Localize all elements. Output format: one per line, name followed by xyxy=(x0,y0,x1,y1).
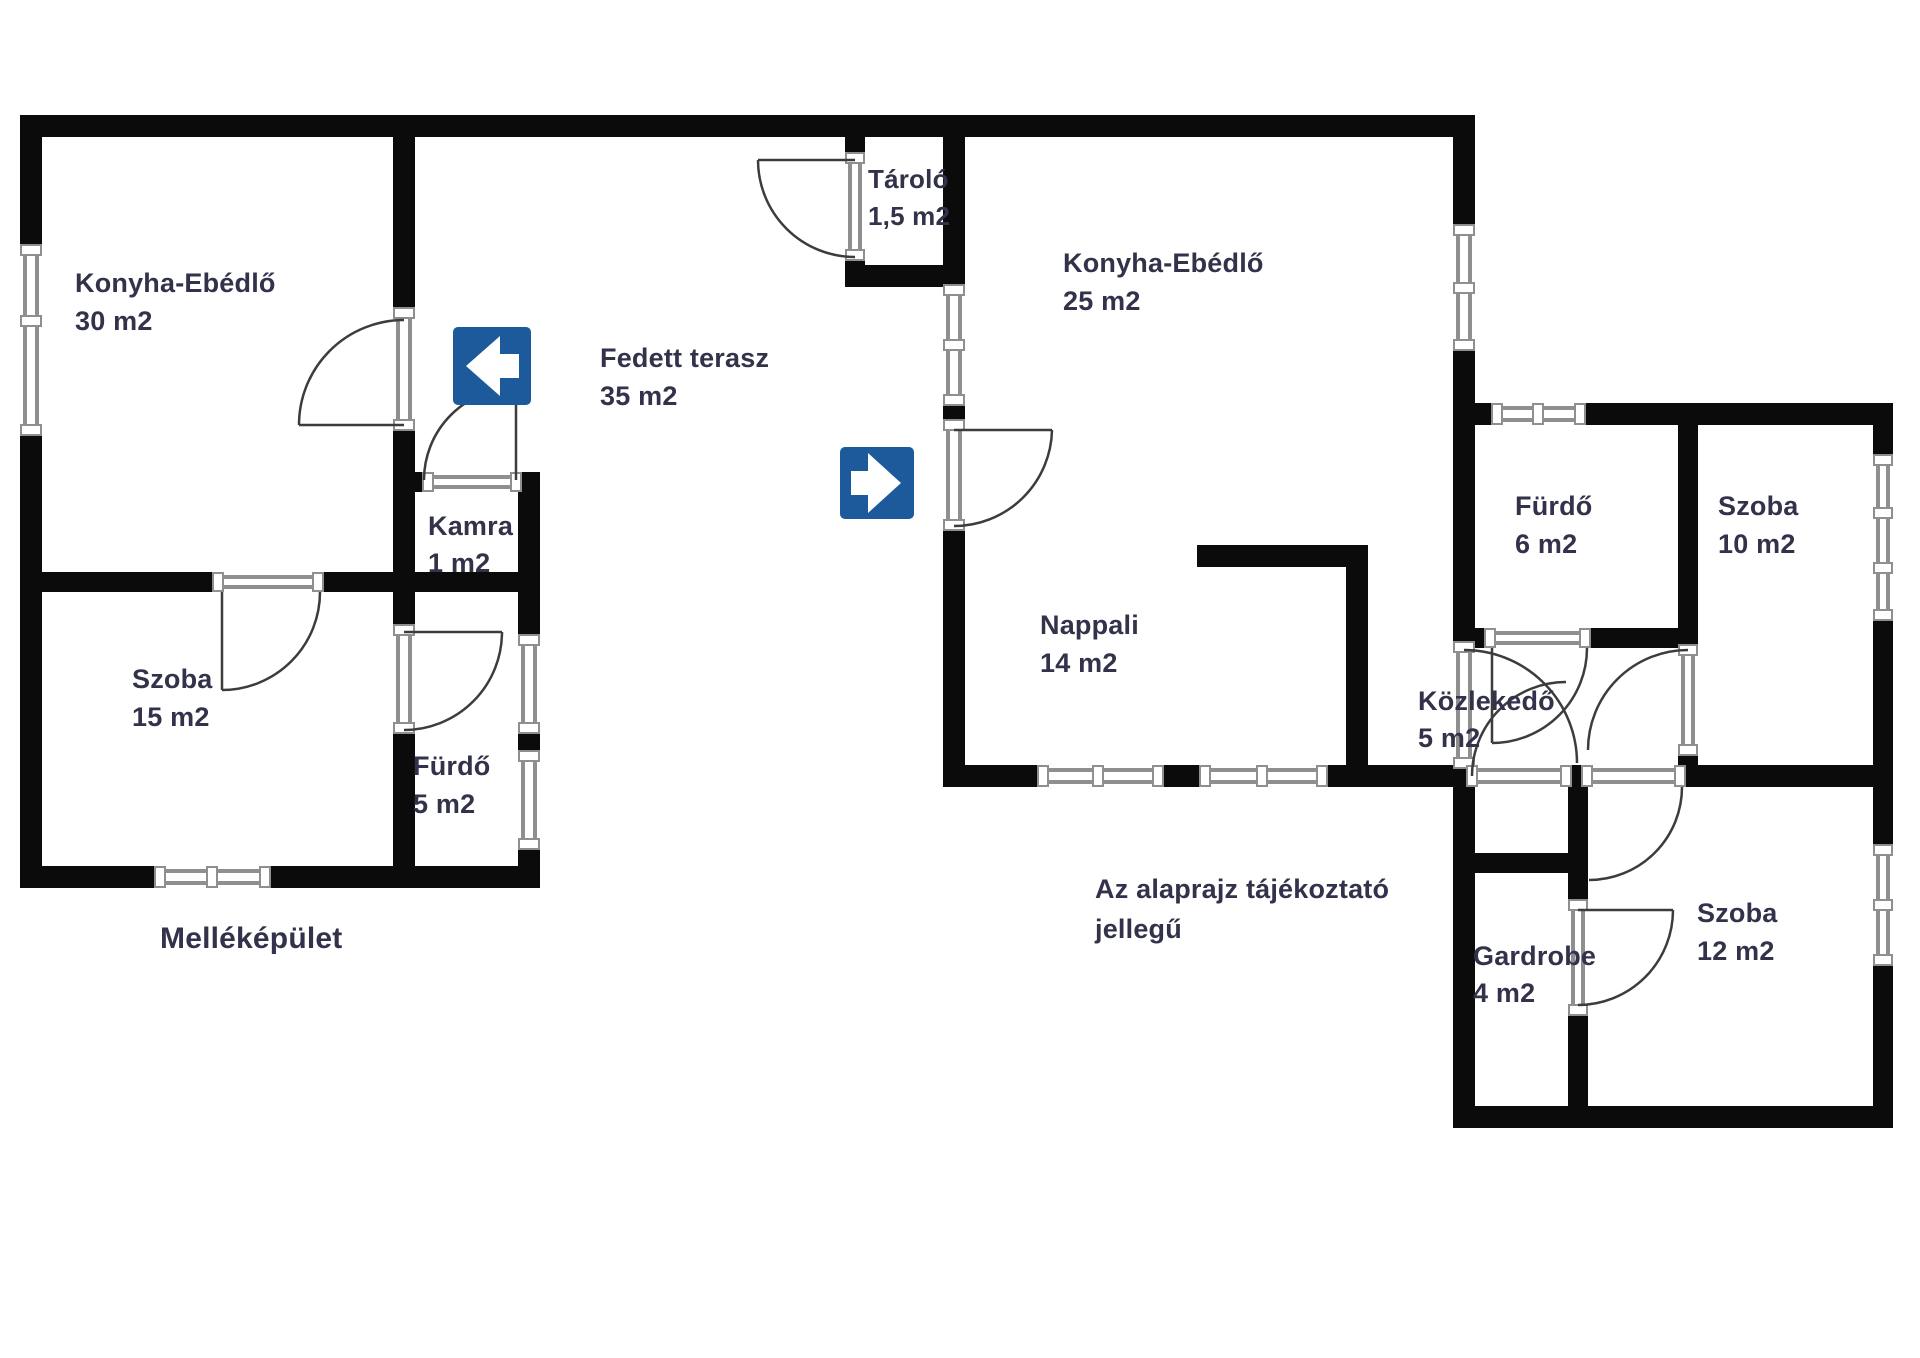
door-frame-szoba12 xyxy=(1582,765,1685,787)
room-label-kamra: Kamra xyxy=(428,511,514,541)
wall-south-divider-a xyxy=(1322,765,1472,787)
wall-gardrobe-east-b xyxy=(1568,1010,1588,1128)
room-label-gardrobe: Gardrobe xyxy=(1473,941,1596,971)
room-area-fedett-terasz: 35 m2 xyxy=(600,381,678,411)
room-area-furdo-5: 5 m2 xyxy=(413,789,475,819)
room-label-furdo-5: Fürdő xyxy=(413,751,490,781)
door-frame-konyha25 xyxy=(943,420,965,530)
room-area-kozlekedo: 5 m2 xyxy=(1418,723,1480,753)
door-swing-szoba10 xyxy=(1588,650,1688,750)
wall-bottom xyxy=(1453,1106,1893,1128)
wall-south-divider-c xyxy=(1680,765,1893,787)
floor-plan-drawing: Konyha-Ebédlő 30 m2 Tároló 1,5 m2 Fedett… xyxy=(0,0,1920,1358)
wall-annex-top-b xyxy=(1580,403,1893,425)
wall-east-column-a xyxy=(518,472,540,640)
room-label-szoba-15: Szoba xyxy=(132,664,213,694)
room-label-kozlekedo: Közlekedő xyxy=(1418,686,1555,716)
wall-left-outer-a xyxy=(20,115,42,250)
window-nappali-bottom-east xyxy=(1200,765,1327,787)
door-frame-szoba15 xyxy=(213,572,323,592)
window-left-wall xyxy=(20,245,42,435)
room-area-gardrobe: 4 m2 xyxy=(1473,978,1535,1008)
door-frame-szoba10 xyxy=(1678,645,1698,755)
floor-plan-page: Konyha-Ebédlő 30 m2 Tároló 1,5 m2 Fedett… xyxy=(0,0,1920,1358)
window-konyha25-west xyxy=(943,285,965,405)
door-swing-konyha25 xyxy=(954,430,1052,526)
wall-east-outer-a xyxy=(1873,403,1893,460)
wall-nappali-bottom-b xyxy=(1158,765,1205,787)
wall-furdo5-west-b xyxy=(393,728,415,866)
window-furdo5-east-upper xyxy=(518,635,540,733)
room-label-szoba-10: Szoba xyxy=(1718,491,1799,521)
wall-main-east-a xyxy=(1453,137,1475,230)
room-area-szoba-10: 10 m2 xyxy=(1718,529,1796,559)
window-szoba10-east xyxy=(1873,455,1893,620)
door-frame-furdo5 xyxy=(393,625,415,733)
wall-main-west-c xyxy=(943,525,965,787)
wall-gardrobe-east-a xyxy=(1568,787,1588,905)
walls xyxy=(20,115,1893,1128)
room-area-furdo-6: 6 m2 xyxy=(1515,529,1577,559)
door-frame-tarolo xyxy=(845,153,865,260)
door-frame-kozlekedo-south xyxy=(1467,765,1571,787)
building-label: Melléképület xyxy=(160,922,342,955)
note-line2: jellegű xyxy=(1094,914,1182,944)
wall-furdo6-szoba10 xyxy=(1678,425,1698,647)
wall-main-east-b xyxy=(1453,345,1475,643)
room-area-konyha-ebedlo-25: 25 m2 xyxy=(1063,286,1141,316)
sign-arrow-right xyxy=(840,447,914,519)
door-swing-szoba12 xyxy=(1589,787,1682,880)
door-swing-furdo5 xyxy=(404,632,502,730)
window-szoba15-bottom xyxy=(155,866,270,888)
door-swing-szoba15 xyxy=(222,592,320,690)
room-label-szoba-12: Szoba xyxy=(1697,898,1778,928)
wall-left-divider-a xyxy=(20,572,218,592)
window-furdo6-top xyxy=(1492,403,1585,425)
room-area-nappali: 14 m2 xyxy=(1040,648,1118,678)
wall-nappali-notch-side xyxy=(1346,545,1368,787)
window-szoba12-east xyxy=(1873,845,1893,965)
door-frame-furdo6 xyxy=(1485,628,1590,648)
room-area-szoba-12: 12 m2 xyxy=(1697,936,1775,966)
room-label-konyha-ebedlo-30: Konyha-Ebédlő xyxy=(75,268,276,298)
wall-left-outer-b xyxy=(20,430,42,888)
room-label-furdo-6: Fürdő xyxy=(1515,491,1592,521)
wall-east-outer-c xyxy=(1873,960,1893,1128)
door-swing-tarolo xyxy=(758,160,855,257)
wall-konyha30-east-a xyxy=(393,137,415,313)
note-line1: Az alaprajz tájékoztató xyxy=(1095,874,1389,904)
room-label-fedett-terasz: Fedett terasz xyxy=(600,343,769,373)
wall-left-bottom-b xyxy=(265,866,540,888)
room-label-konyha-ebedlo-25: Konyha-Ebédlő xyxy=(1063,248,1264,278)
window-konyha25-east xyxy=(1453,225,1475,350)
wall-konyha30-east-b xyxy=(393,425,415,592)
wall-nappali-notch-top xyxy=(1197,545,1368,567)
room-label-tarolo: Tároló xyxy=(868,164,949,194)
wall-main-east-c xyxy=(1453,763,1475,1128)
door-frame-konyha30 xyxy=(393,308,415,430)
sign-arrow-left xyxy=(453,327,531,405)
room-area-szoba-15: 15 m2 xyxy=(132,702,210,732)
room-area-konyha-ebedlo-30: 30 m2 xyxy=(75,306,153,336)
room-area-tarolo: 1,5 m2 xyxy=(868,201,950,231)
wall-east-outer-b xyxy=(1873,615,1893,850)
door-frame-kamra xyxy=(423,472,521,492)
room-area-kamra: 1 m2 xyxy=(428,548,490,578)
window-nappali-bottom-west xyxy=(1038,765,1163,787)
wall-top xyxy=(20,115,1475,137)
window-furdo5-east-lower xyxy=(518,751,540,849)
door-swing-konyha30 xyxy=(299,320,404,425)
room-label-nappali: Nappali xyxy=(1040,610,1139,640)
